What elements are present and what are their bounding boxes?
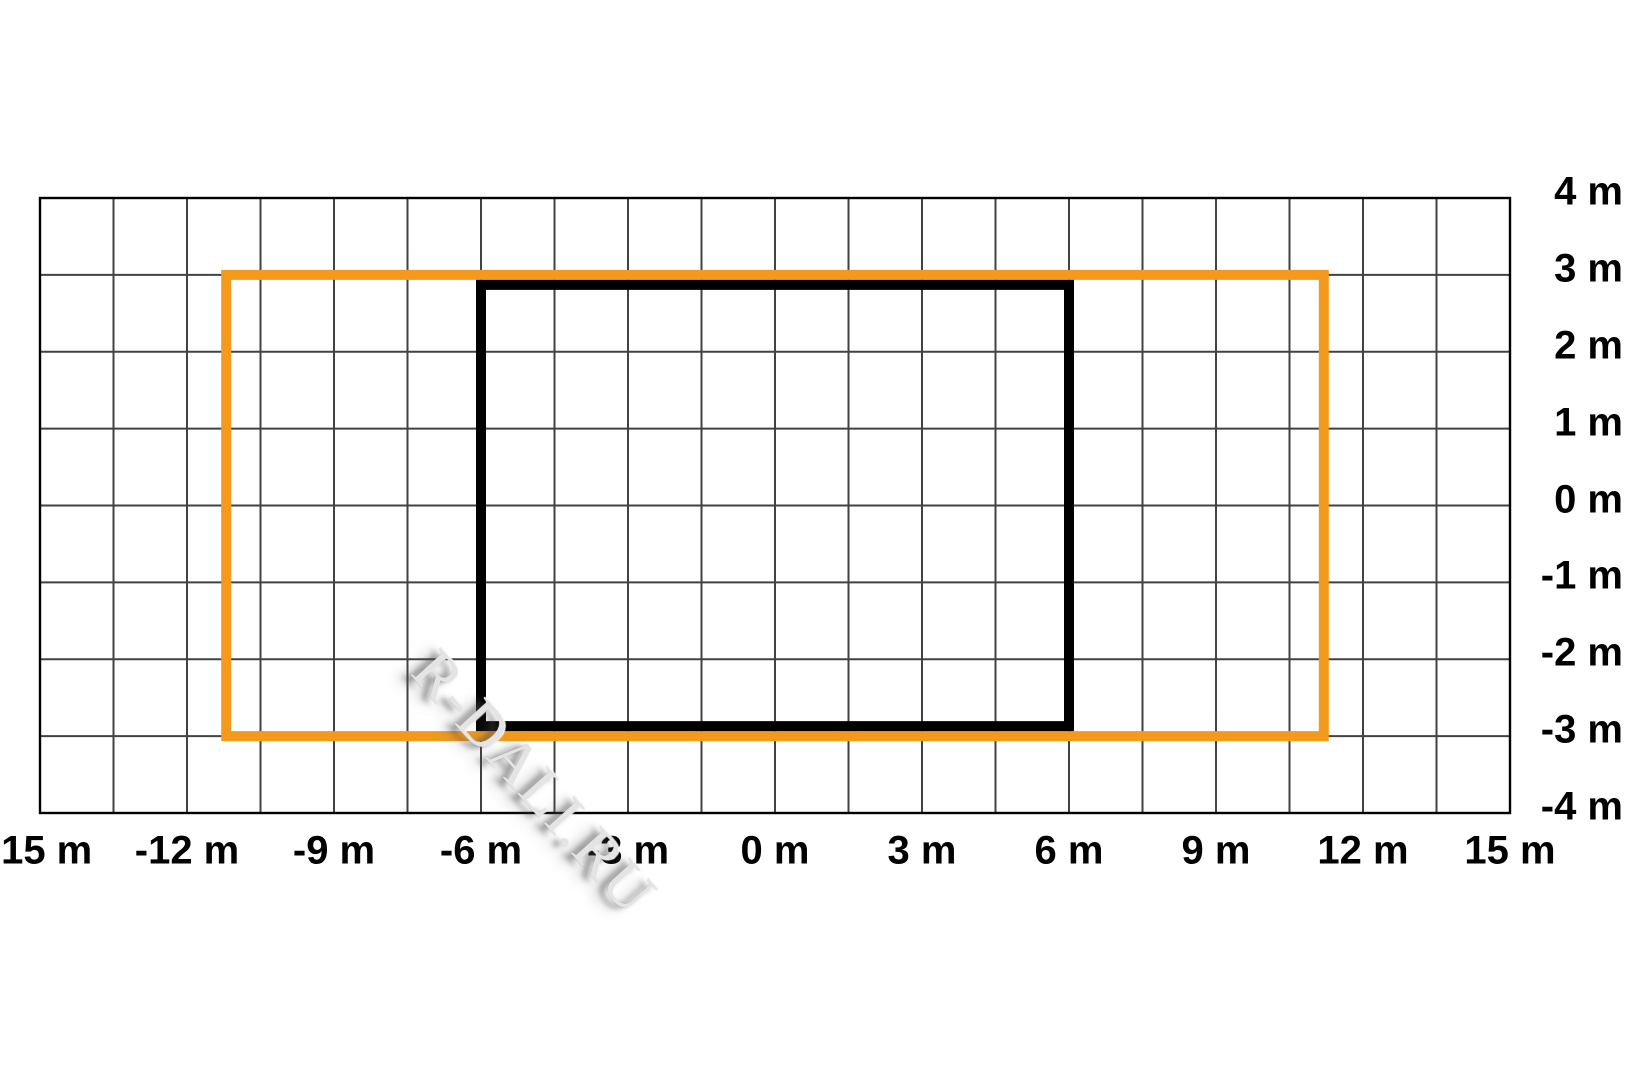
chart-svg [0,0,1642,1070]
figure-canvas: -15 m-12 m-9 m-6 m-3 m0 m3 m6 m9 m12 m15… [0,0,1642,1070]
